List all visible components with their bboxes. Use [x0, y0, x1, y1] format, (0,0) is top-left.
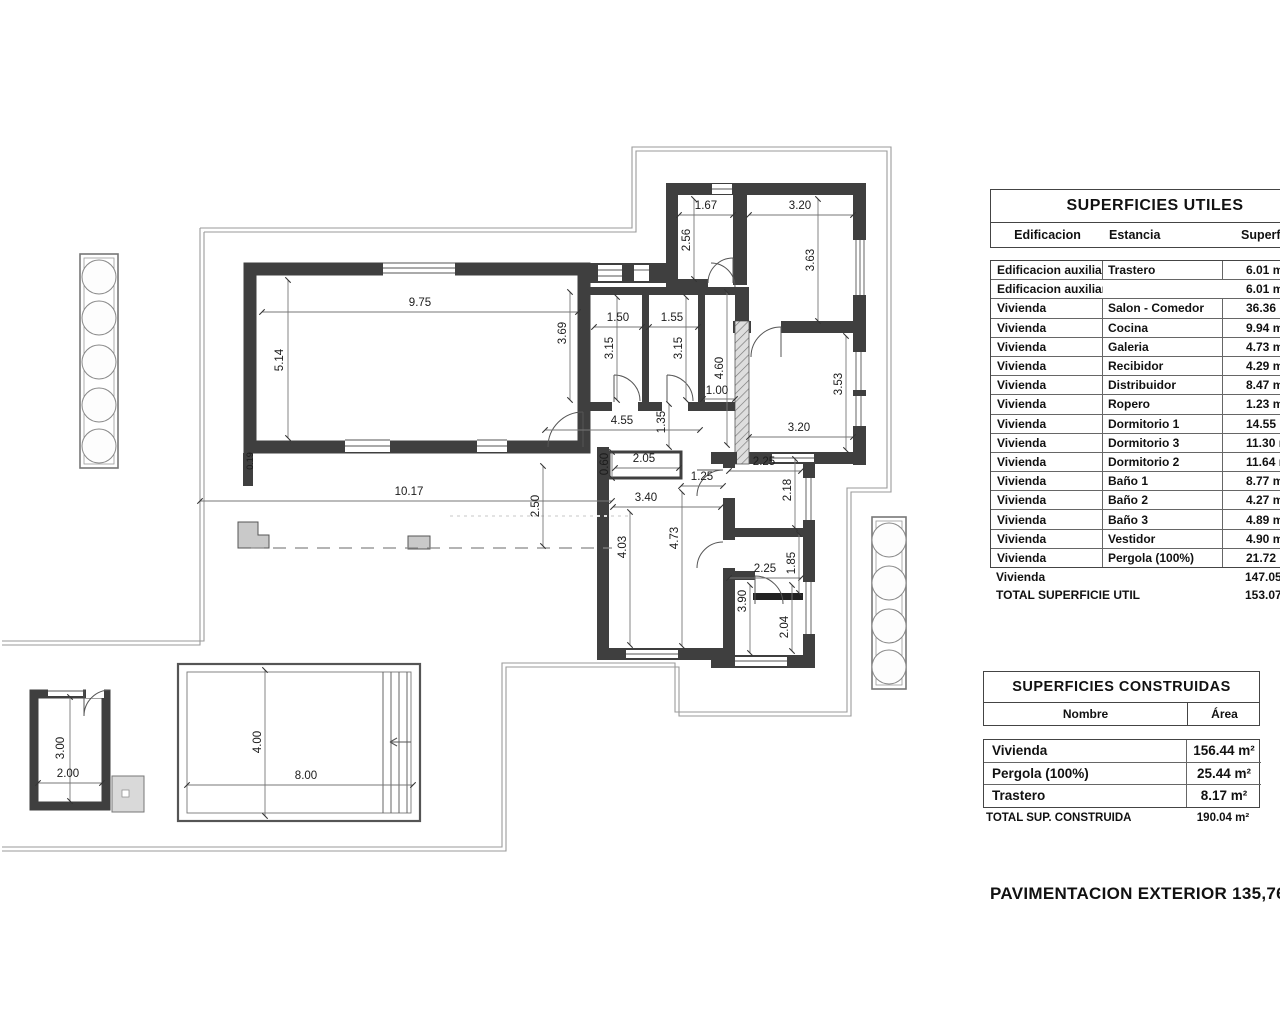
tree-icon — [82, 429, 116, 463]
dimension-label: 0.19 — [245, 452, 255, 470]
table-cell: 25.44 m² — [1187, 763, 1261, 785]
table-cell: Vivienda — [991, 338, 1103, 356]
table-cell: Baño 3 — [1103, 510, 1223, 528]
dimension-label: 3.63 — [805, 249, 817, 271]
dimension-label: 8.00 — [295, 770, 317, 782]
table-cell: 1.23 m² — [1223, 395, 1280, 413]
dimension-label: 3.15 — [673, 337, 685, 359]
table-cell: 11.30 m² — [1223, 434, 1280, 452]
table-total-row: TOTAL SUP. CONSTRUIDA 190.04 m² — [983, 808, 1260, 829]
table-cell: Edificacion auxiliar — [991, 261, 1103, 279]
table-row: ViviendaPergola (100%)21.72 m² — [991, 548, 1280, 567]
table-cell: Vivienda — [991, 319, 1103, 337]
dimension-label: 4.55 — [611, 415, 633, 427]
tree-icon — [82, 260, 116, 294]
table-row: ViviendaDormitorio 114.55 m² — [991, 414, 1280, 433]
table-cell: Dormitorio 1 — [1103, 415, 1223, 433]
table-cell: 156.44 m² — [1187, 740, 1261, 762]
table-cell: Vivienda — [991, 491, 1103, 509]
column-header: Área — [1188, 703, 1261, 725]
superficies-construidas-table: SUPERFICIES CONSTRUIDAS Nombre Área Vivi… — [983, 671, 1260, 829]
table-row: ViviendaGaleria4.73 m² — [991, 337, 1280, 356]
dimension-label: 1.55 — [661, 312, 683, 324]
dimension-label: 2.05 — [633, 453, 655, 465]
pool-steps-arrow — [390, 738, 411, 746]
right-planter — [872, 517, 906, 689]
table-cell: 8.17 m² — [1187, 785, 1261, 807]
table-body: Vivienda156.44 m²Pergola (100%)25.44 m²T… — [983, 739, 1260, 808]
table-row: ViviendaRecibidor4.29 m² — [991, 356, 1280, 375]
table-cell: 4.27 m² — [1223, 491, 1280, 509]
table-body: Edificacion auxiliarTrastero6.01 m²Edifi… — [990, 260, 1280, 568]
dimension-label: 2.04 — [779, 615, 791, 638]
dimension-label: 1.35 — [656, 411, 668, 433]
table-header: Edificacion Estancia Superficie — [991, 223, 1280, 247]
dimension-label: 3.90 — [737, 590, 749, 612]
table-cell: Vivienda — [991, 357, 1103, 375]
dimension-label: 0.60 — [599, 453, 611, 475]
table-cell: 36.36 m² — [1223, 299, 1280, 317]
table-cell: Vivienda — [991, 453, 1103, 471]
dimension-label: 3.15 — [604, 337, 616, 359]
dimension-label: 2.56 — [681, 229, 693, 251]
table-row: ViviendaSalon - Comedor36.36 m² — [991, 298, 1280, 317]
table-row: ViviendaBaño 24.27 m² — [991, 490, 1280, 509]
column-header: Estancia — [1104, 223, 1224, 247]
table-row: ViviendaRopero1.23 m² — [991, 394, 1280, 413]
table-cell: Pergola (100%) — [984, 763, 1187, 785]
table-cell: Vivienda — [991, 530, 1103, 548]
dimension-label: 9.75 — [409, 297, 431, 309]
dimension-label: 3.69 — [557, 322, 569, 344]
table-cell: Pergola (100%) — [1103, 549, 1223, 567]
table-cell: Distribuidor — [1103, 376, 1223, 394]
dimension-label: 4.03 — [617, 536, 629, 558]
table-cell: 21.72 m² — [1223, 549, 1280, 567]
dimension-label: 3.53 — [833, 373, 845, 395]
dimension-label: 3.00 — [55, 737, 67, 759]
table-cell: Baño 1 — [1103, 472, 1223, 490]
column-header: Edificacion — [991, 223, 1104, 247]
table-cell: Vivienda — [984, 740, 1187, 762]
dimension-label: 3.40 — [635, 492, 657, 504]
table-subtotal-row: Vivienda 147.05 m² — [990, 568, 1280, 586]
plot-boundary — [2, 147, 891, 851]
table-cell: 4.29 m² — [1223, 357, 1280, 375]
dimension-label: 3.20 — [788, 422, 810, 434]
dimension-label: 4.60 — [714, 357, 726, 379]
table-row: ViviendaDistribuidor8.47 m² — [991, 375, 1280, 394]
table-row: ViviendaBaño 18.77 m² — [991, 471, 1280, 490]
table-cell: Galeria — [1103, 338, 1223, 356]
column-header: Nombre — [984, 703, 1188, 725]
table-cell: 6.01 m² — [1223, 261, 1280, 279]
dimension-label: 1.67 — [695, 200, 717, 212]
table-row: ViviendaVestidor4.90 m² — [991, 529, 1280, 548]
dimension-label: 2.25 — [753, 456, 775, 468]
dimension-label: 1.00 — [706, 385, 728, 397]
table-row: ViviendaBaño 34.89 m² — [991, 509, 1280, 528]
table-total-row: TOTAL SUPERFICIE UTIL 153.07 m² — [990, 586, 1280, 604]
table-cell: Vivienda — [991, 510, 1103, 528]
table-row: Vivienda156.44 m² — [984, 740, 1261, 762]
table-cell: Recibidor — [1103, 357, 1223, 375]
table-cell: 4.89 m² — [1223, 510, 1280, 528]
table-cell: Edificacion auxiliar — [991, 280, 1103, 298]
tree-icon — [872, 650, 906, 684]
table-cell: 6.01 m² — [1223, 280, 1280, 298]
table-cell: Vivienda — [991, 415, 1103, 433]
table-row: Edificacion auxiliar6.01 m² — [991, 279, 1280, 298]
table-row: Edificacion auxiliarTrastero6.01 m² — [991, 261, 1280, 279]
dimension-label: 1.85 — [786, 552, 798, 574]
table-header: Nombre Área — [984, 703, 1259, 725]
tree-icon — [82, 301, 116, 335]
table-cell: Dormitorio 3 — [1103, 434, 1223, 452]
dimension-label: 1.50 — [607, 312, 629, 324]
dimension-label: 4.00 — [252, 731, 264, 753]
tree-icon — [82, 388, 116, 422]
table-title: SUPERFICIES CONSTRUIDAS — [984, 672, 1259, 703]
dimension-label: 4.73 — [669, 527, 681, 549]
pergola-column — [238, 522, 269, 548]
table-cell: 9.94 m² — [1223, 319, 1280, 337]
dimension-label: 5.14 — [274, 348, 286, 371]
table-cell: Baño 2 — [1103, 491, 1223, 509]
table-cell: Cocina — [1103, 319, 1223, 337]
dimension-label: 2.00 — [57, 768, 79, 780]
column-header: Superficie — [1224, 223, 1280, 247]
tree-icon — [872, 523, 906, 557]
trastero-building — [34, 686, 144, 812]
table-row: ViviendaCocina9.94 m² — [991, 318, 1280, 337]
table-row: ViviendaDormitorio 311.30 m² — [991, 433, 1280, 452]
tree-icon — [82, 345, 116, 379]
dimension-label: 10.17 — [395, 486, 424, 498]
pergola-column — [408, 536, 430, 549]
pool — [178, 664, 420, 821]
tree-icon — [872, 609, 906, 643]
table-cell: 4.90 m² — [1223, 530, 1280, 548]
table-cell: 8.77 m² — [1223, 472, 1280, 490]
table-cell: Vivienda — [991, 434, 1103, 452]
dimension-label: 1.25 — [691, 471, 713, 483]
floor-plan-page: { "plan": { "dimensions": [ {"t":"9.75",… — [0, 0, 1280, 1024]
table-cell: 14.55 m² — [1223, 415, 1280, 433]
table-cell: Vivienda — [991, 376, 1103, 394]
dimension-label: 3.20 — [789, 200, 811, 212]
table-row: ViviendaDormitorio 211.64 m² — [991, 452, 1280, 471]
table-cell: Vestidor — [1103, 530, 1223, 548]
superficies-utiles-table: SUPERFICIES UTILES Edificacion Estancia … — [990, 189, 1280, 604]
left-planter — [80, 254, 118, 468]
table-row: Trastero8.17 m² — [984, 784, 1261, 807]
table-cell: 8.47 m² — [1223, 376, 1280, 394]
table-cell: 11.64 m² — [1223, 453, 1280, 471]
table-cell: Trastero — [1103, 261, 1223, 279]
dimension-label: 2.18 — [782, 479, 794, 501]
tree-icon — [872, 566, 906, 600]
table-cell: Trastero — [984, 785, 1187, 807]
dimension-label: 2.25 — [754, 563, 776, 575]
table-cell: Dormitorio 2 — [1103, 453, 1223, 471]
table-cell: Vivienda — [991, 549, 1103, 567]
table-cell: Ropero — [1103, 395, 1223, 413]
table-row: Pergola (100%)25.44 m² — [984, 762, 1261, 785]
table-cell: Vivienda — [991, 472, 1103, 490]
table-title: SUPERFICIES UTILES — [991, 190, 1280, 223]
table-cell — [1103, 280, 1223, 298]
dimension-label: 2.50 — [530, 495, 542, 517]
table-cell: Salon - Comedor — [1103, 299, 1223, 317]
pergola-terrace — [238, 516, 632, 549]
table-cell: Vivienda — [991, 299, 1103, 317]
house-walls — [243, 183, 866, 668]
table-cell: Vivienda — [991, 395, 1103, 413]
pavimentacion-exterior-note: PAVIMENTACION EXTERIOR 135,76 m² — [990, 884, 1280, 904]
table-cell: 4.73 m² — [1223, 338, 1280, 356]
